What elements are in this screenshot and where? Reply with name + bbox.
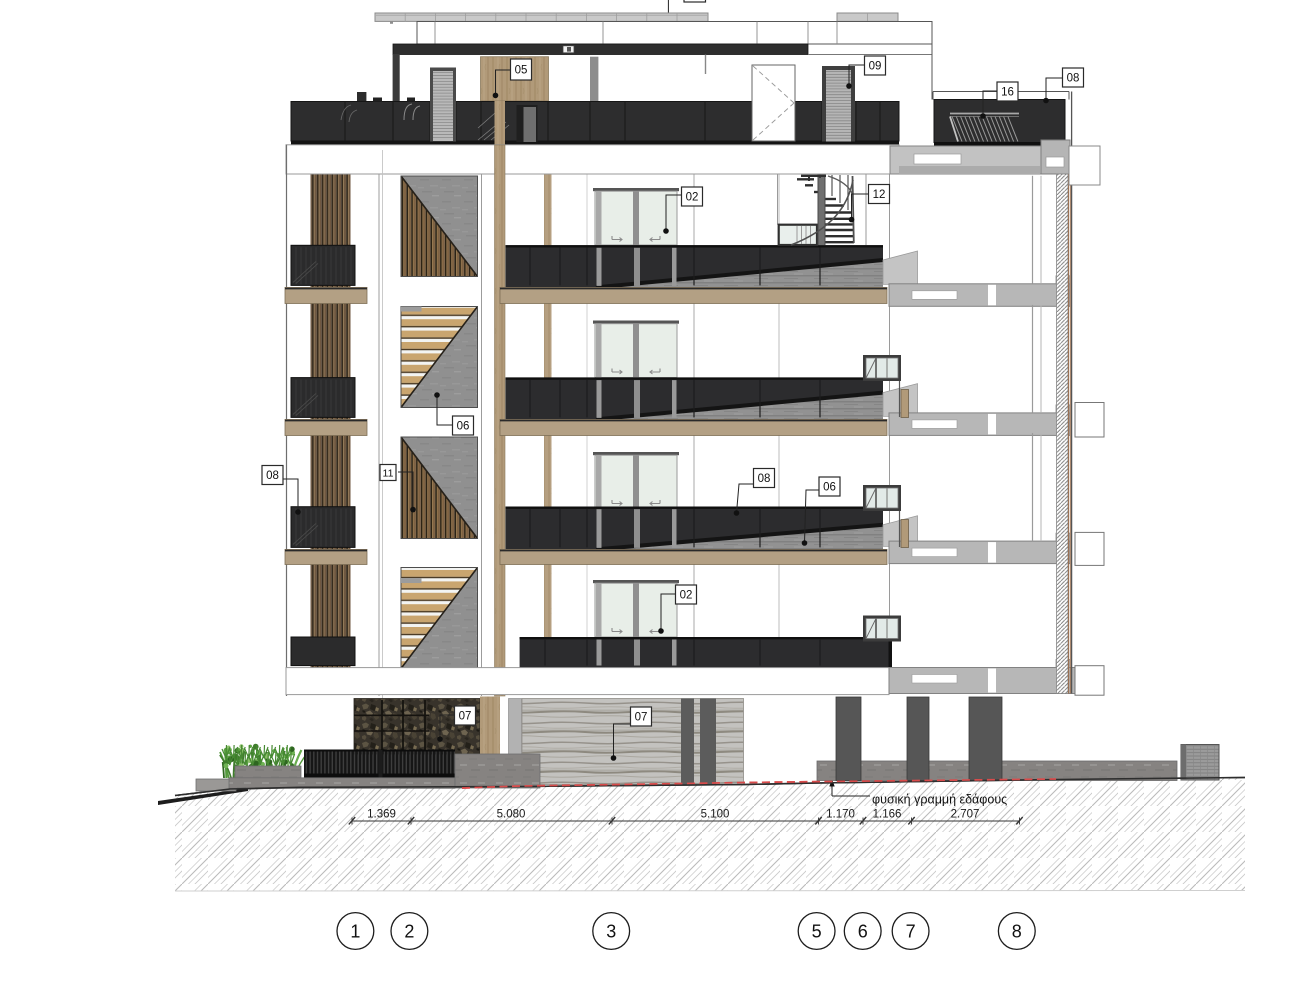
svg-text:05: 05 <box>515 65 528 77</box>
svg-text:08: 08 <box>758 473 771 485</box>
svg-text:5: 5 <box>812 922 822 942</box>
svg-text:6: 6 <box>858 922 868 942</box>
svg-text:06: 06 <box>823 482 836 494</box>
svg-text:7: 7 <box>906 922 916 942</box>
svg-text:8: 8 <box>1012 922 1022 942</box>
svg-text:1.166: 1.166 <box>873 809 902 821</box>
svg-text:1: 1 <box>350 922 360 942</box>
svg-text:φυσική γραμμή εδάφους: φυσική γραμμή εδάφους <box>872 793 1007 807</box>
svg-text:02: 02 <box>686 192 699 204</box>
svg-text:3: 3 <box>606 922 616 942</box>
svg-text:11: 11 <box>383 468 394 480</box>
svg-text:09: 09 <box>869 61 882 73</box>
svg-text:02: 02 <box>680 590 693 602</box>
svg-text:07: 07 <box>459 711 472 723</box>
svg-text:12: 12 <box>873 189 886 201</box>
svg-text:08: 08 <box>266 470 279 482</box>
svg-text:08: 08 <box>1067 73 1080 85</box>
svg-text:5.100: 5.100 <box>701 809 730 821</box>
svg-text:2: 2 <box>404 922 414 942</box>
svg-text:06: 06 <box>457 421 470 433</box>
svg-text:2.707: 2.707 <box>951 809 980 821</box>
svg-text:1.170: 1.170 <box>826 809 855 821</box>
svg-text:07: 07 <box>635 712 648 724</box>
svg-text:16: 16 <box>1001 87 1014 99</box>
svg-text:5.080: 5.080 <box>497 809 526 821</box>
svg-text:1.369: 1.369 <box>367 809 396 821</box>
